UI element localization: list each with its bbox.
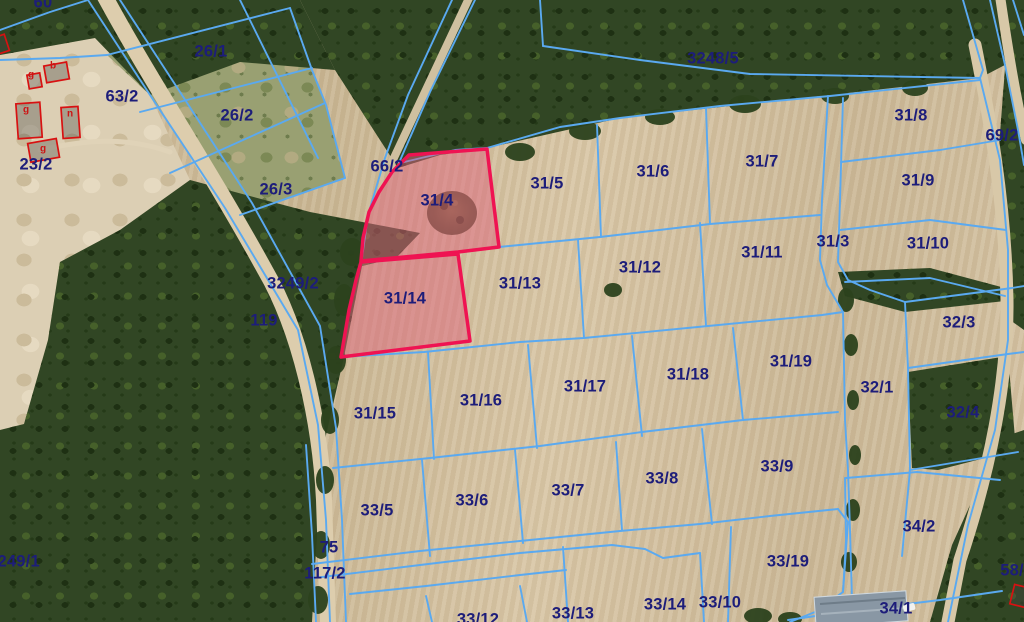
parcel-label-33-7: 33/7: [552, 482, 585, 501]
parcel-label-31-13: 31/13: [499, 275, 541, 294]
parcel-label-33-19: 33/19: [767, 553, 809, 572]
parcel-label-66-2: 66/2: [371, 158, 404, 177]
parcel-label-23-2: 23/2: [20, 156, 53, 175]
building-letter-b: b: [50, 61, 56, 72]
parcel-label-3249-1: 3249/1: [0, 553, 40, 572]
parcel-label-31-19: 31/19: [770, 353, 812, 372]
parcel-label-26-3: 26/3: [260, 181, 293, 200]
parcel-label-117-2: 117/2: [304, 565, 345, 584]
parcel-label-32-4: 32/4: [947, 404, 980, 423]
parcel-label-33-13: 33/13: [552, 605, 594, 622]
parcel-label-26-1: 26/1: [195, 43, 228, 62]
parcel-label-31-12: 31/12: [619, 259, 661, 278]
parcel-label-34-2: 34/2: [903, 518, 936, 537]
parcel-label-31-15: 31/15: [354, 405, 396, 424]
parcel-label-33-9: 33/9: [761, 458, 794, 477]
building-letter-n: n: [67, 109, 73, 120]
parcel-label-31-14: 31/14: [384, 290, 426, 309]
parcel-label-33-6: 33/6: [456, 492, 489, 511]
parcel-label-31-7: 31/7: [746, 153, 779, 172]
parcel-label-69-2: 69/2: [986, 127, 1019, 146]
parcel-label-3248-5: 3248/5: [687, 50, 739, 69]
parcel-label-75: 75: [320, 539, 339, 558]
parcel-label-31-16: 31/16: [460, 392, 502, 411]
parcel-label-58-: 58/: [1000, 562, 1024, 581]
parcel-label-31-9: 31/9: [902, 172, 935, 191]
parcel-label-33-14: 33/14: [644, 596, 686, 615]
parcel-label-26-2: 26/2: [221, 107, 254, 126]
parcel-label-33-5: 33/5: [361, 502, 394, 521]
parcel-label-60: 60: [34, 0, 53, 13]
parcel-label-31-4: 31/4: [421, 192, 454, 211]
parcel-label-32-1: 32/1: [861, 379, 894, 398]
parcel-label-31-10: 31/10: [907, 235, 949, 254]
parcel-label-31-17: 31/17: [564, 378, 606, 397]
label-layer: 6026/163/226/223/226/33248/566/231/431/5…: [0, 0, 1024, 622]
parcel-label-63-2: 63/2: [106, 88, 139, 107]
parcel-label-34-1: 34/1: [880, 600, 913, 619]
parcel-label-31-6: 31/6: [637, 163, 670, 182]
parcel-label-31-11: 31/11: [741, 244, 782, 263]
building-letter-g: g: [28, 70, 34, 81]
parcel-label-33-10: 33/10: [699, 594, 741, 613]
parcel-label-31-8: 31/8: [895, 107, 928, 126]
parcel-label-33-12: 33/12: [457, 611, 499, 622]
cadastral-map: 6026/163/226/223/226/33248/566/231/431/5…: [0, 0, 1024, 622]
parcel-label-31-3: 31/3: [817, 233, 850, 252]
building-letter-g: g: [23, 105, 29, 116]
parcel-label-31-5: 31/5: [531, 175, 564, 194]
parcel-label-32-3: 32/3: [943, 314, 976, 333]
building-letter-g: g: [40, 144, 46, 155]
parcel-label-3249-2: 3249/2: [267, 275, 319, 294]
parcel-label-33-8: 33/8: [646, 470, 679, 489]
parcel-label-119: 119: [250, 312, 277, 331]
parcel-label-31-18: 31/18: [667, 366, 709, 385]
